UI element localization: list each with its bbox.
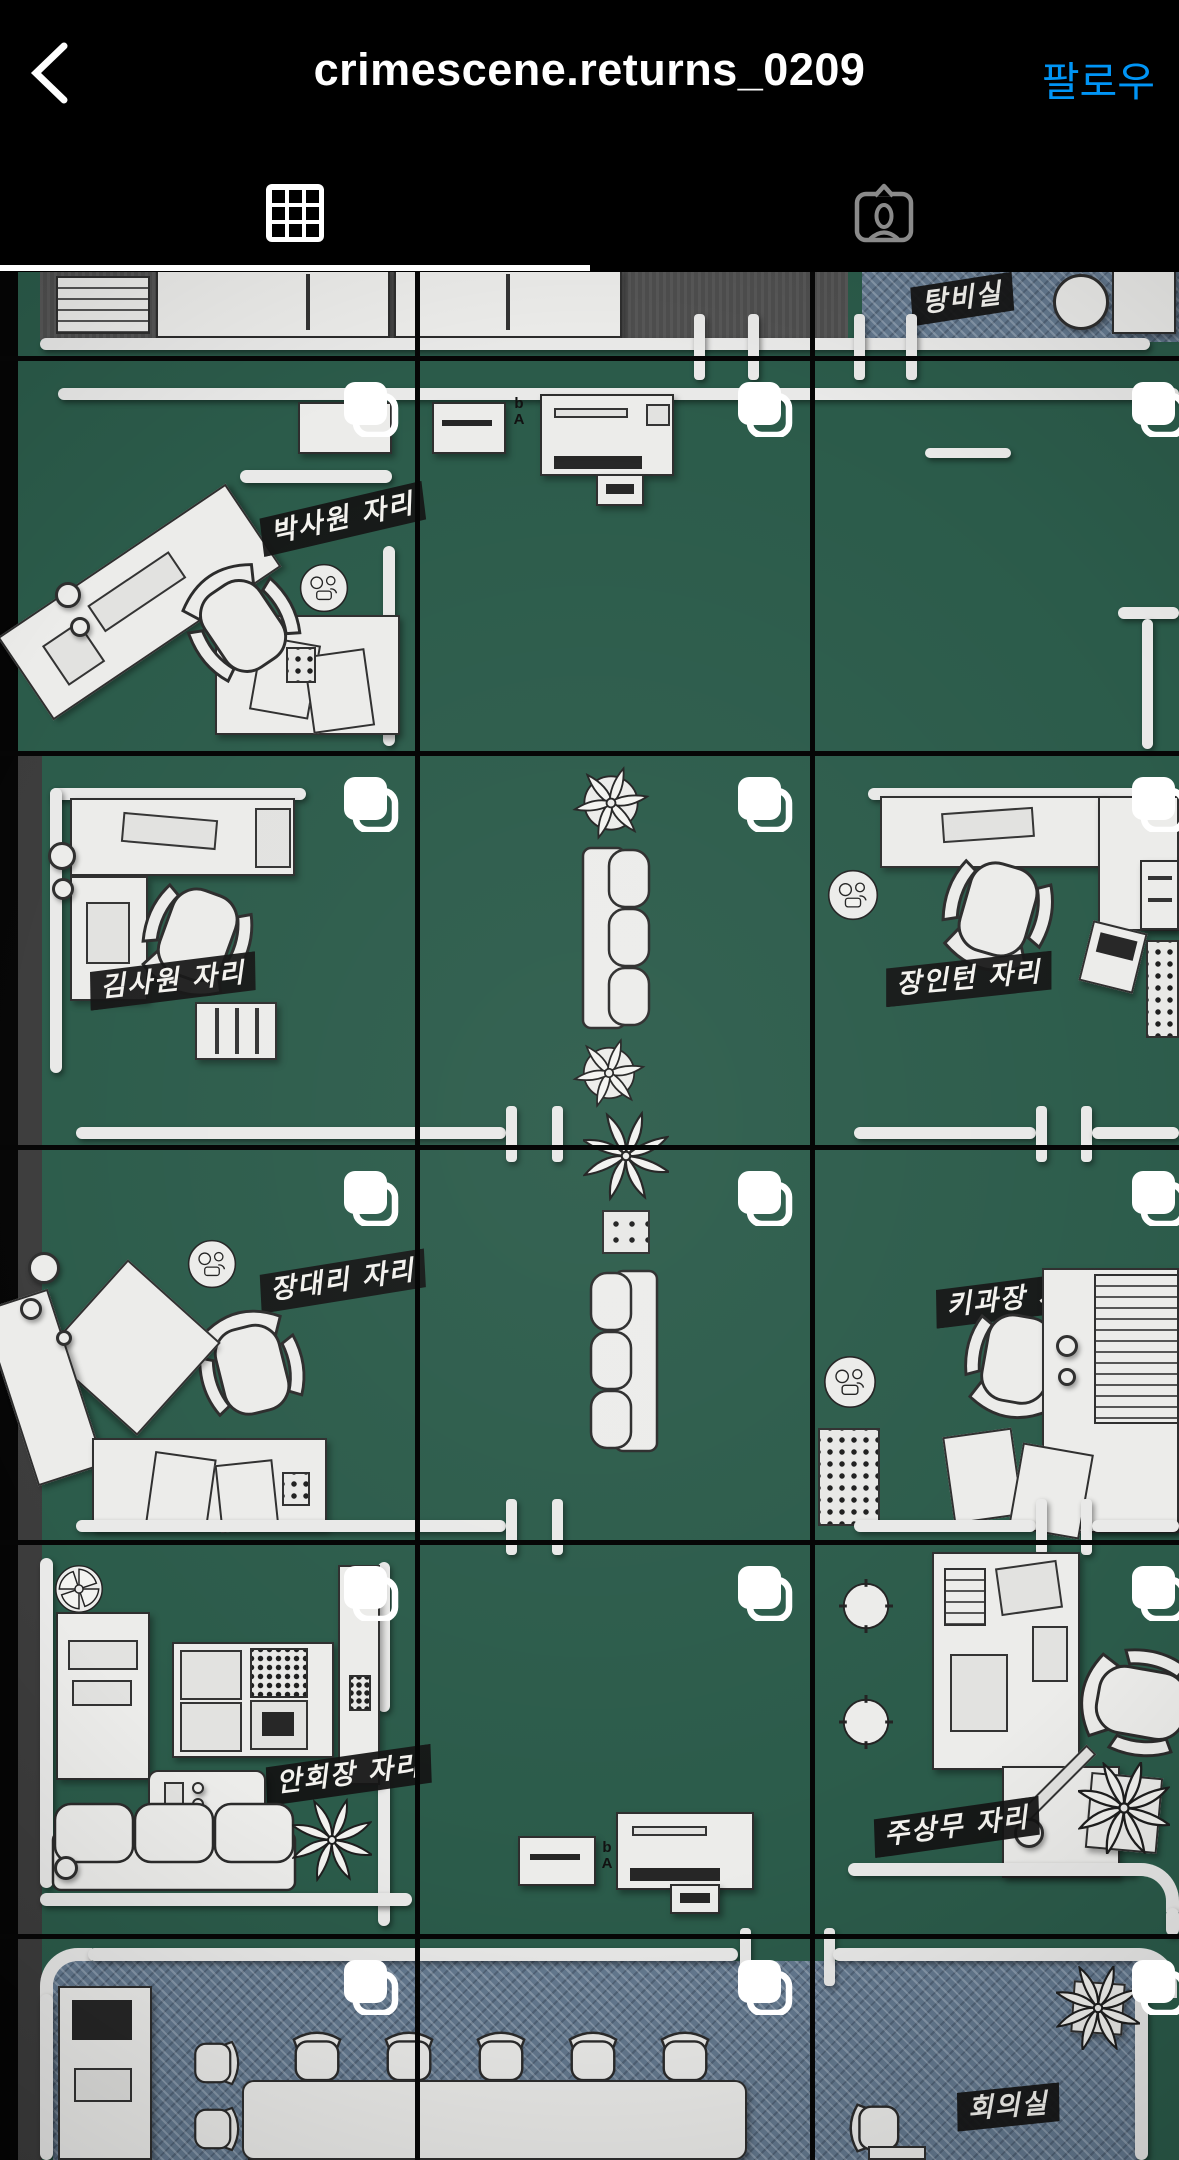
post-cell[interactable]: [18, 361, 415, 751]
post-cell[interactable]: [18, 1150, 415, 1540]
post-cell[interactable]: [18, 756, 415, 1145]
post-cell[interactable]: [18, 272, 415, 356]
post-cell[interactable]: [18, 1545, 415, 1934]
follow-button[interactable]: 팔로우: [1042, 48, 1155, 108]
post-cell[interactable]: [420, 1545, 810, 1934]
post-cell[interactable]: [420, 756, 810, 1145]
profile-username-title: crimescene.returns_0209: [0, 44, 1179, 96]
tagged-person-icon: [853, 182, 915, 244]
post-cell[interactable]: [815, 1939, 1179, 2160]
instagram-profile-screen: crimescene.returns_0209 팔로우: [0, 0, 1179, 2160]
plan-outer-edge: [0, 272, 18, 2160]
post-cell[interactable]: [815, 361, 1179, 751]
post-cell[interactable]: [420, 1939, 810, 2160]
tab-tagged[interactable]: [824, 168, 944, 258]
grid-icon: [265, 183, 325, 243]
selected-tab-indicator: [0, 265, 590, 271]
tab-posts-grid[interactable]: [235, 168, 355, 258]
post-cell[interactable]: [420, 361, 810, 751]
post-cell[interactable]: [420, 272, 810, 356]
post-cell[interactable]: [420, 1150, 810, 1540]
post-cell[interactable]: [815, 1150, 1179, 1540]
post-cell[interactable]: [18, 1939, 415, 2160]
post-cell[interactable]: [815, 272, 1179, 356]
header-bar: crimescene.returns_0209 팔로우: [0, 0, 1179, 272]
post-cell[interactable]: [815, 756, 1179, 1145]
post-cell[interactable]: [815, 1545, 1179, 1934]
